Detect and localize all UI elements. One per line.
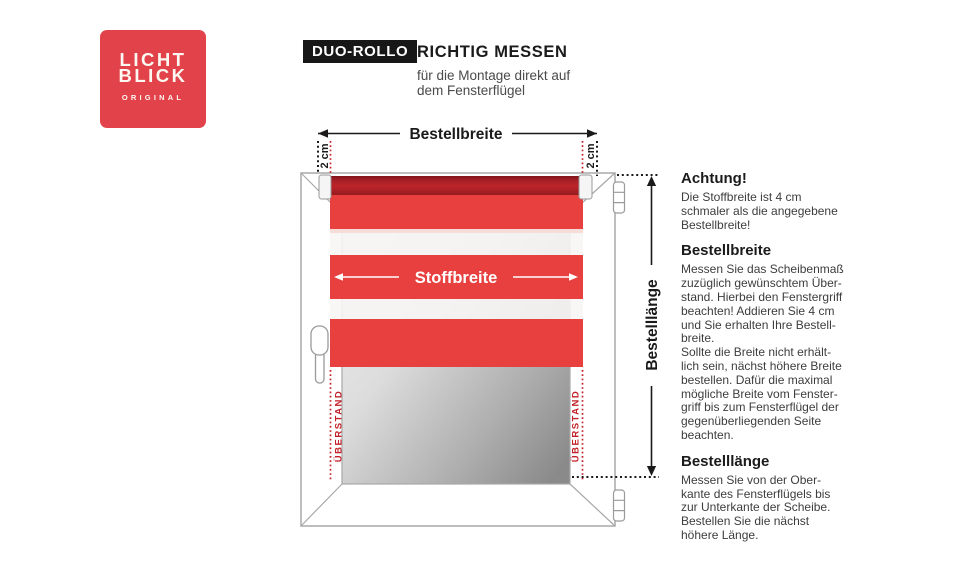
logo-subtext: ORIGINAL: [100, 93, 206, 102]
transparent-stripe: [330, 299, 583, 319]
gap-right-label: 2 cm: [585, 143, 597, 168]
product-badge: DUO-ROLLO: [303, 40, 417, 63]
section-heading-bestellbreite: Bestellbreite: [681, 242, 863, 259]
bestelllaenge-label: Bestelllänge: [644, 279, 661, 371]
roller-tube: [330, 176, 583, 195]
section-body-achtung: Die Stoffbreite ist 4 cm schmaler als di…: [681, 191, 863, 232]
section-heading-achtung: Achtung!: [681, 170, 863, 187]
page-subtitle: für die Montage direkt auf dem Fensterfl…: [417, 68, 570, 98]
section-body-bestelllaenge: Messen Sie von der Ober- kante des Fenst…: [681, 474, 863, 543]
roller-bracket-right: [579, 175, 592, 199]
page-title: RICHTIG MESSEN: [417, 43, 568, 62]
arrowhead-up-icon: [647, 176, 656, 186]
window-hinge-top-icon: [614, 182, 625, 213]
section-body-bestellbreite: Messen Sie das Scheibenmaß zuzüglich gew…: [681, 263, 863, 442]
fabric-stripe: [330, 195, 583, 229]
arrowhead-right-icon: [587, 129, 597, 138]
overhang-right-label: ÜBERSTAND: [570, 390, 581, 462]
bestellbreite-label: Bestellbreite: [409, 126, 502, 143]
roller-bracket-left: [319, 175, 331, 199]
window-hinge-bottom-icon: [614, 490, 625, 521]
arrowhead-down-icon: [647, 466, 656, 476]
fabric-stripe: [330, 319, 583, 367]
measurement-diagram: Stoffbreite Bestellbreite 2 cm 2 cm ÜBER…: [290, 120, 670, 535]
section-heading-bestelllaenge: Bestelllänge: [681, 453, 863, 470]
bestellbreite-dimension: Bestellbreite 2 cm 2 cm: [318, 126, 597, 176]
gap-left-label: 2 cm: [319, 143, 331, 168]
overhang-left-label: ÜBERSTAND: [333, 390, 344, 462]
logo-line2: BLICK: [100, 68, 206, 84]
info-column: Achtung! Die Stoffbreite ist 4 cm schmal…: [681, 170, 863, 553]
lichtblick-logo: LICHT BLICK ORIGINAL: [100, 30, 206, 128]
stoffbreite-label: Stoffbreite: [415, 269, 498, 287]
arrowhead-left-icon: [318, 129, 328, 138]
